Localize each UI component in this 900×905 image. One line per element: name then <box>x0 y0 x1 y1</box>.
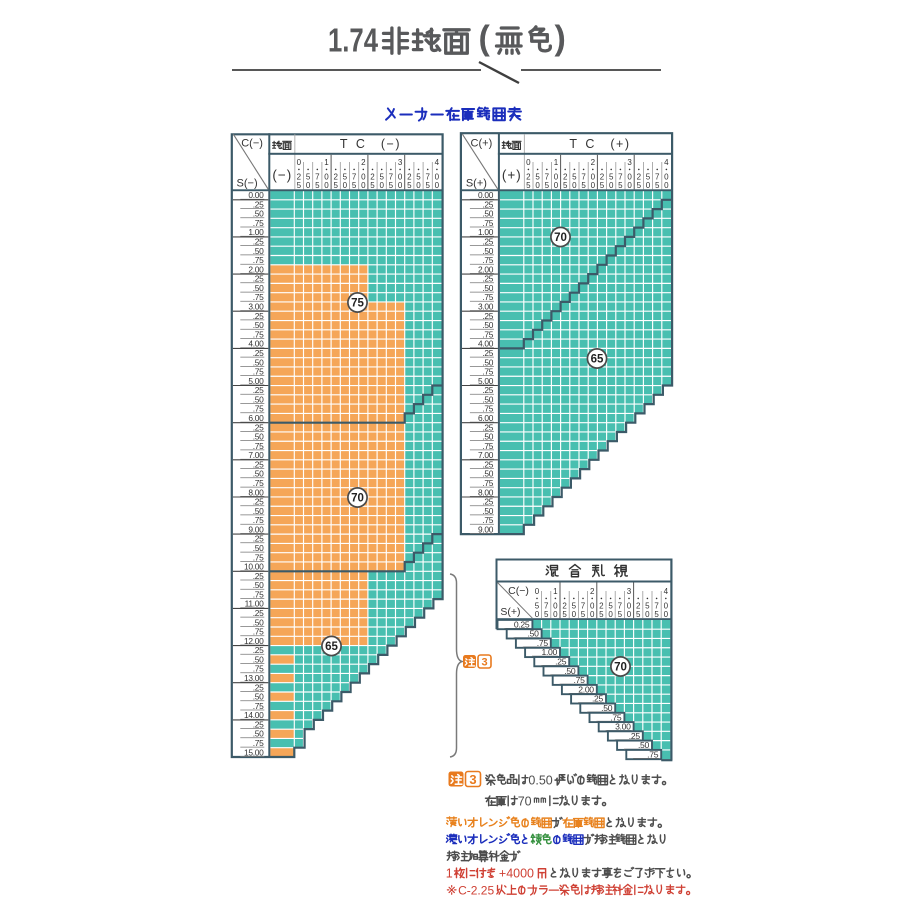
svg-text:0.50: 0.50 <box>528 774 552 788</box>
svg-text:0: 0 <box>554 181 559 190</box>
svg-text:5: 5 <box>333 181 338 190</box>
svg-text:(−): (−) <box>381 137 401 151</box>
svg-text:70: 70 <box>518 795 532 809</box>
svg-text:0: 0 <box>572 610 577 619</box>
svg-text:0: 0 <box>590 610 595 619</box>
svg-text:5: 5 <box>618 610 623 619</box>
svg-text:5: 5 <box>618 181 623 190</box>
svg-text:3: 3 <box>627 158 632 167</box>
svg-text:5: 5 <box>352 181 357 190</box>
svg-text:0: 0 <box>297 158 302 167</box>
svg-text:0: 0 <box>324 181 329 190</box>
svg-text:3: 3 <box>627 587 632 596</box>
svg-text:T: T <box>569 137 577 151</box>
svg-text:5: 5 <box>370 181 375 190</box>
svg-text:0: 0 <box>361 181 366 190</box>
svg-text:C(+): C(+) <box>471 138 493 150</box>
svg-text:C: C <box>585 137 594 151</box>
svg-text:75: 75 <box>351 298 364 310</box>
svg-text:C(−): C(−) <box>241 138 263 150</box>
svg-text:S(−): S(−) <box>237 178 258 190</box>
svg-text:5: 5 <box>581 181 586 190</box>
svg-text:2: 2 <box>590 587 595 596</box>
svg-text:5: 5 <box>599 610 604 619</box>
svg-text:3: 3 <box>398 158 403 167</box>
svg-text:3: 3 <box>481 657 487 669</box>
svg-text:5: 5 <box>425 181 430 190</box>
svg-text:5: 5 <box>526 181 531 190</box>
svg-text:5: 5 <box>562 610 567 619</box>
svg-text:.75: .75 <box>647 749 659 759</box>
svg-text:T: T <box>340 137 348 151</box>
svg-text:5: 5 <box>600 181 605 190</box>
svg-text:1: 1 <box>554 158 559 167</box>
svg-text:S(+): S(+) <box>500 606 520 618</box>
svg-text:2: 2 <box>361 158 366 167</box>
svg-text:70: 70 <box>554 232 567 244</box>
svg-text:(−): (−) <box>272 168 292 183</box>
svg-text:5: 5 <box>563 181 568 190</box>
svg-text:65: 65 <box>325 641 338 653</box>
svg-text:C(−): C(−) <box>508 585 529 597</box>
svg-text:1: 1 <box>324 158 329 167</box>
svg-text:0: 0 <box>645 610 650 619</box>
svg-text:5: 5 <box>581 610 586 619</box>
svg-text:5: 5 <box>637 181 642 190</box>
svg-text:0: 0 <box>627 181 632 190</box>
svg-text:0: 0 <box>627 610 632 619</box>
svg-text:): ) <box>555 20 566 58</box>
svg-text:0: 0 <box>435 181 440 190</box>
svg-text:0: 0 <box>608 610 613 619</box>
svg-text:5: 5 <box>389 181 394 190</box>
svg-text:5: 5 <box>636 610 641 619</box>
svg-text:0: 0 <box>343 181 348 190</box>
svg-text:S(+): S(+) <box>466 178 487 190</box>
svg-text:0: 0 <box>664 181 669 190</box>
svg-text:65: 65 <box>591 354 604 366</box>
svg-text:0: 0 <box>306 181 311 190</box>
svg-text:4: 4 <box>664 587 669 596</box>
svg-text:4: 4 <box>435 158 440 167</box>
svg-text:0: 0 <box>553 610 558 619</box>
svg-text:1: 1 <box>446 867 453 881</box>
svg-text:0: 0 <box>416 181 421 190</box>
svg-text:0: 0 <box>398 181 403 190</box>
svg-text:0: 0 <box>609 181 614 190</box>
svg-text:0: 0 <box>526 158 531 167</box>
svg-text:9.00: 9.00 <box>478 524 494 534</box>
svg-text:0: 0 <box>591 181 596 190</box>
svg-text:70: 70 <box>351 493 364 505</box>
svg-text:C: C <box>356 137 365 151</box>
svg-text:0: 0 <box>664 610 669 619</box>
svg-text:2: 2 <box>591 158 596 167</box>
svg-text:1.74: 1.74 <box>328 22 378 59</box>
svg-text:0: 0 <box>379 181 384 190</box>
svg-text:0: 0 <box>535 587 540 596</box>
svg-text:5: 5 <box>654 610 659 619</box>
svg-text:(+): (+) <box>610 137 630 151</box>
svg-text:0: 0 <box>646 181 651 190</box>
svg-text:70: 70 <box>614 662 627 674</box>
svg-text:5: 5 <box>545 181 550 190</box>
svg-text:5: 5 <box>315 181 320 190</box>
svg-text:5: 5 <box>297 181 302 190</box>
svg-text:1: 1 <box>553 587 558 596</box>
svg-text:5: 5 <box>655 181 660 190</box>
svg-text:5: 5 <box>544 610 549 619</box>
svg-text:3: 3 <box>469 772 476 787</box>
svg-text:5: 5 <box>407 181 412 190</box>
svg-text:(+): (+) <box>502 168 522 183</box>
svg-text:0: 0 <box>535 610 540 619</box>
svg-text:C-2.25: C-2.25 <box>458 884 494 898</box>
svg-text:(: ( <box>479 20 491 58</box>
svg-text:15.00: 15.00 <box>244 747 264 757</box>
svg-text:4: 4 <box>664 158 669 167</box>
svg-text:+4000: +4000 <box>499 867 534 881</box>
svg-text:0: 0 <box>535 181 540 190</box>
svg-text:0: 0 <box>572 181 577 190</box>
